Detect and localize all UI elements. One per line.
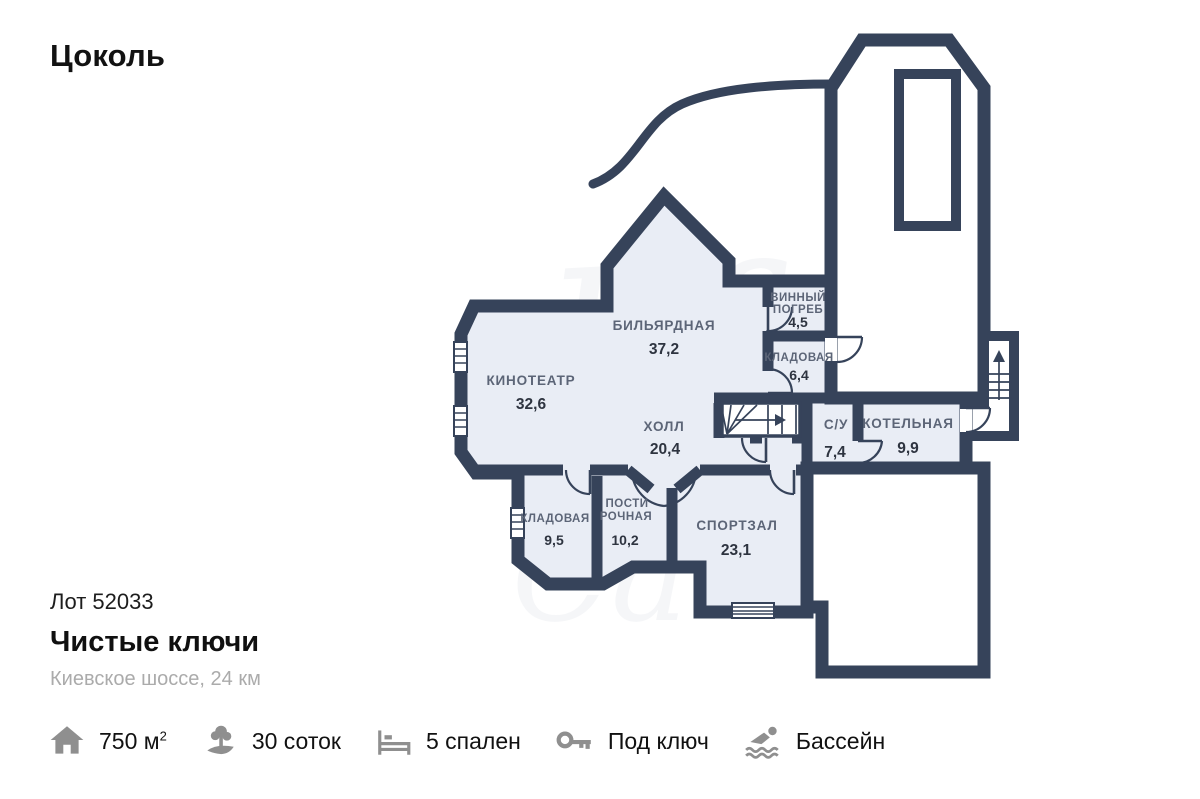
svg-text:БИЛЬЯРДНАЯ: БИЛЬЯРДНАЯ — [613, 318, 716, 333]
window — [454, 406, 467, 436]
room-unlabeled — [800, 468, 984, 672]
house-icon — [48, 722, 86, 760]
feature-bedrooms: 5 спален — [375, 722, 521, 760]
svg-text:ХОЛЛ: ХОЛЛ — [644, 419, 685, 434]
svg-text:9,9: 9,9 — [897, 440, 919, 457]
structure-tall — [831, 40, 984, 398]
feature-pool: Бассейн — [743, 722, 885, 760]
listing-location: Киевское шоссе, 24 км — [50, 668, 261, 691]
feature-area-label: 750 м2 — [99, 728, 167, 755]
stairs-fan — [722, 403, 800, 436]
bed-icon — [375, 722, 413, 760]
svg-text:23,1: 23,1 — [721, 542, 752, 559]
svg-text:ВИННЫЙ: ВИННЫЙ — [770, 291, 826, 304]
land-icon — [201, 722, 239, 760]
svg-text:СПОРТЗАЛ: СПОРТЗАЛ — [696, 518, 777, 533]
pool-icon — [743, 722, 783, 760]
svg-text:КЛАДОВАЯ: КЛАДОВАЯ — [520, 513, 589, 525]
feature-area: 750 м2 — [48, 722, 167, 760]
flue-shaft — [899, 74, 956, 226]
svg-text:КИНОТЕАТР: КИНОТЕАТР — [487, 373, 576, 388]
feature-land: 30 соток — [201, 722, 341, 760]
svg-text:6,4: 6,4 — [789, 367, 809, 383]
key-icon — [555, 722, 595, 760]
svg-text:КЛАДОВАЯ: КЛАДОВАЯ — [764, 352, 833, 364]
svg-text:ПОСТИ: ПОСТИ — [605, 498, 648, 510]
svg-text:С/У: С/У — [824, 417, 848, 432]
svg-text:37,2: 37,2 — [649, 341, 679, 358]
svg-text:КОТЕЛЬНАЯ: КОТЕЛЬНАЯ — [862, 416, 954, 431]
listing-info: Лот 52033 Чистые ключи Киевское шоссе, 2… — [50, 589, 261, 691]
terrace-curve-wall — [593, 84, 833, 184]
svg-text:32,6: 32,6 — [516, 396, 547, 413]
estate-name: Чистые ключи — [50, 626, 261, 659]
svg-text:РОЧНАЯ: РОЧНАЯ — [600, 511, 652, 523]
svg-text:7,4: 7,4 — [824, 444, 846, 461]
window — [454, 342, 467, 372]
svg-text:20,4: 20,4 — [650, 441, 681, 458]
lot-number: Лот 52033 — [50, 589, 261, 615]
svg-text:10,2: 10,2 — [611, 532, 638, 548]
svg-text:4,5: 4,5 — [788, 314, 808, 330]
feature-turnkey: Под ключ — [555, 722, 709, 760]
floor-plan-page: Цоколь life Ca — [0, 0, 1200, 799]
door-gap — [960, 409, 972, 432]
window — [732, 603, 774, 618]
svg-text:9,5: 9,5 — [544, 532, 564, 548]
features-row: 750 м2 30 соток — [48, 722, 885, 760]
